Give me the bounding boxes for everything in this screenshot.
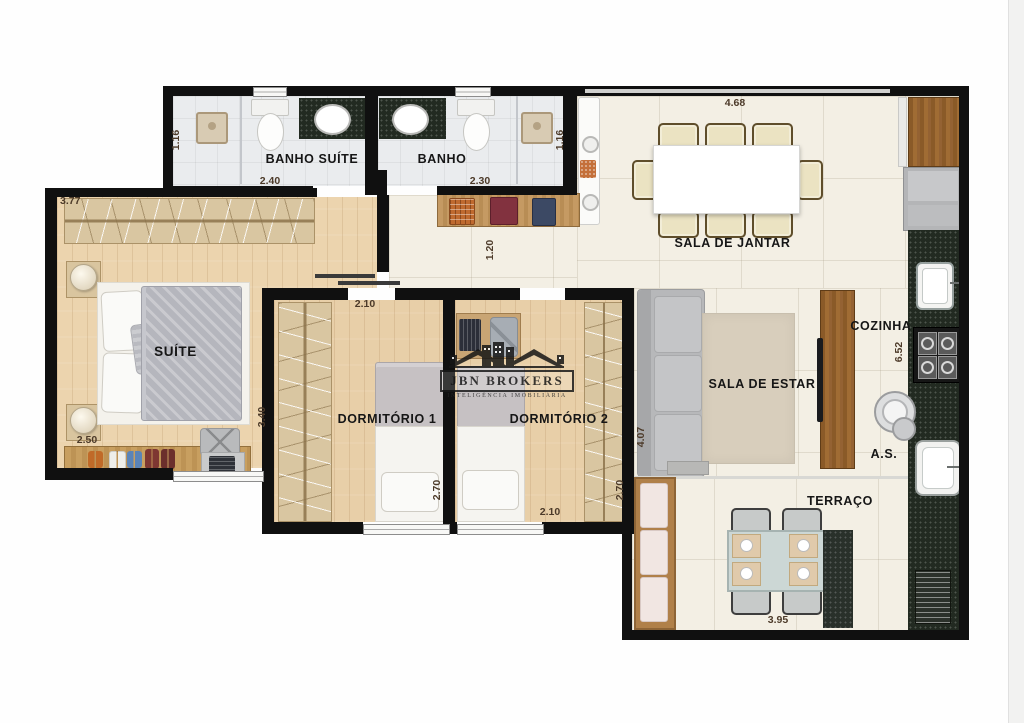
shoes xyxy=(88,451,103,468)
toilet-bowl xyxy=(463,113,490,151)
shoes xyxy=(145,449,159,469)
sliding-door-icon xyxy=(338,281,400,285)
hanging-shirt xyxy=(490,197,518,225)
sliding-door-icon xyxy=(315,274,375,278)
terrace-bench xyxy=(634,477,676,630)
placemat xyxy=(732,562,761,586)
terrace-planter xyxy=(823,530,853,628)
vanity-sink xyxy=(392,104,429,135)
lamp xyxy=(70,407,97,434)
shower-head xyxy=(196,112,228,144)
lamp xyxy=(70,264,97,291)
kitchen-sink xyxy=(916,262,954,310)
corridor-closet xyxy=(437,193,580,227)
toilet-bowl xyxy=(257,113,284,151)
drain-grill xyxy=(915,570,951,624)
dining-chair xyxy=(658,211,699,238)
brand-name: JBN BROKERS xyxy=(440,370,573,392)
dim-hall-w: 1.20 xyxy=(484,232,496,268)
placemat xyxy=(789,534,818,558)
dim-banho-suite-w: 2.40 xyxy=(240,175,300,187)
door-pocket xyxy=(371,170,387,195)
window xyxy=(173,471,264,482)
wall xyxy=(377,195,389,272)
wall xyxy=(959,86,969,640)
decor-bowl xyxy=(582,136,599,153)
dim-banho-d: 1.16 xyxy=(554,122,566,158)
dim-suite-top: 3.77 xyxy=(60,195,100,207)
wall xyxy=(437,186,577,195)
suite-wardrobe xyxy=(64,198,315,244)
room-label-sala-estar: SALA DE ESTAR xyxy=(688,377,836,391)
page-margin-band xyxy=(1008,0,1024,723)
hanging-jeans xyxy=(532,198,556,226)
floor-plan: JBN BROKERS INTELIGÊNCIA IMOBILIÁRIA BAN… xyxy=(0,0,1024,723)
dining-chair xyxy=(752,211,793,238)
dining-table xyxy=(653,145,800,214)
dim-suite-d: 3.40 xyxy=(256,399,268,435)
wall xyxy=(45,188,57,480)
hanging-shirt xyxy=(449,198,475,225)
dim-suite-bottom: 2.50 xyxy=(62,434,112,446)
console-buffet xyxy=(578,97,600,225)
dining-chair xyxy=(705,211,746,238)
window xyxy=(455,87,491,97)
room-label-banho-suite: BANHO SUÍTE xyxy=(238,152,386,166)
shower-glass xyxy=(516,96,518,184)
brand-tagline: INTELIGÊNCIA IMOBILIÁRIA xyxy=(437,393,577,399)
window xyxy=(363,524,450,535)
wall xyxy=(622,630,969,640)
shoes xyxy=(127,451,142,468)
wall xyxy=(395,288,443,300)
dim-banho-w: 2.30 xyxy=(450,175,510,187)
wall xyxy=(45,468,173,480)
dim-terraco-w: 3.95 xyxy=(748,614,808,626)
wall xyxy=(163,186,313,195)
decor-bowl xyxy=(582,194,599,211)
brand-watermark: JBN BROKERS INTELIGÊNCIA IMOBILIÁRIA xyxy=(437,342,577,399)
dining-chair xyxy=(797,160,823,200)
fridge xyxy=(903,167,963,231)
room-label-dorm1: DORMITÓRIO 1 xyxy=(318,412,456,426)
room-label-sala-jantar: SALA DE JANTAR xyxy=(655,236,810,250)
wall xyxy=(262,522,363,534)
room-label-as: A.S. xyxy=(858,447,910,461)
wall xyxy=(542,522,634,534)
kitchen-window-strip xyxy=(898,97,907,167)
dim-cozinha-d: 6.52 xyxy=(893,334,905,370)
terrace-table xyxy=(727,530,827,592)
window-band xyxy=(585,89,890,93)
burner-icon xyxy=(918,356,937,379)
dim-dorm1-d: 2.70 xyxy=(431,472,443,508)
room-label-banho: BANHO xyxy=(398,152,486,166)
burner-icon xyxy=(918,332,937,355)
room-label-terraco: TERRAÇO xyxy=(788,494,892,508)
washing-machine xyxy=(874,391,914,441)
shoes xyxy=(161,449,175,469)
window xyxy=(457,524,544,535)
dim-jantar-w: 4.68 xyxy=(705,97,765,109)
laundry-sink xyxy=(915,440,961,496)
wall xyxy=(622,524,632,640)
brand-logo-icon xyxy=(449,342,565,370)
wall xyxy=(455,288,520,300)
cooktop xyxy=(913,327,961,383)
shower-head xyxy=(521,112,553,144)
bed-pillow xyxy=(462,470,519,510)
threshold-step xyxy=(667,461,709,475)
shower-glass xyxy=(240,96,242,184)
placemat xyxy=(789,562,818,586)
wall xyxy=(443,288,455,534)
wall xyxy=(565,288,634,300)
room-label-suite: SUÍTE xyxy=(128,344,223,359)
dim-dorm2-w: 2.10 xyxy=(520,506,580,518)
decor-plant xyxy=(580,160,596,178)
placemat xyxy=(732,534,761,558)
burner-icon xyxy=(938,332,957,355)
room-label-dorm2: DORMITÓRIO 2 xyxy=(488,412,630,426)
dim-banho-suite-d: 1.16 xyxy=(170,122,182,158)
window xyxy=(253,87,287,97)
dim-estar-d: 4.07 xyxy=(635,419,647,455)
dim-dorm2-d: 2.70 xyxy=(614,472,626,508)
kitchen-cabinet xyxy=(908,97,961,167)
burner-icon xyxy=(938,356,957,379)
room-label-cozinha: COZINHA xyxy=(828,319,934,333)
dim-dorm1-w: 2.10 xyxy=(335,298,395,310)
vanity-sink xyxy=(314,104,351,135)
